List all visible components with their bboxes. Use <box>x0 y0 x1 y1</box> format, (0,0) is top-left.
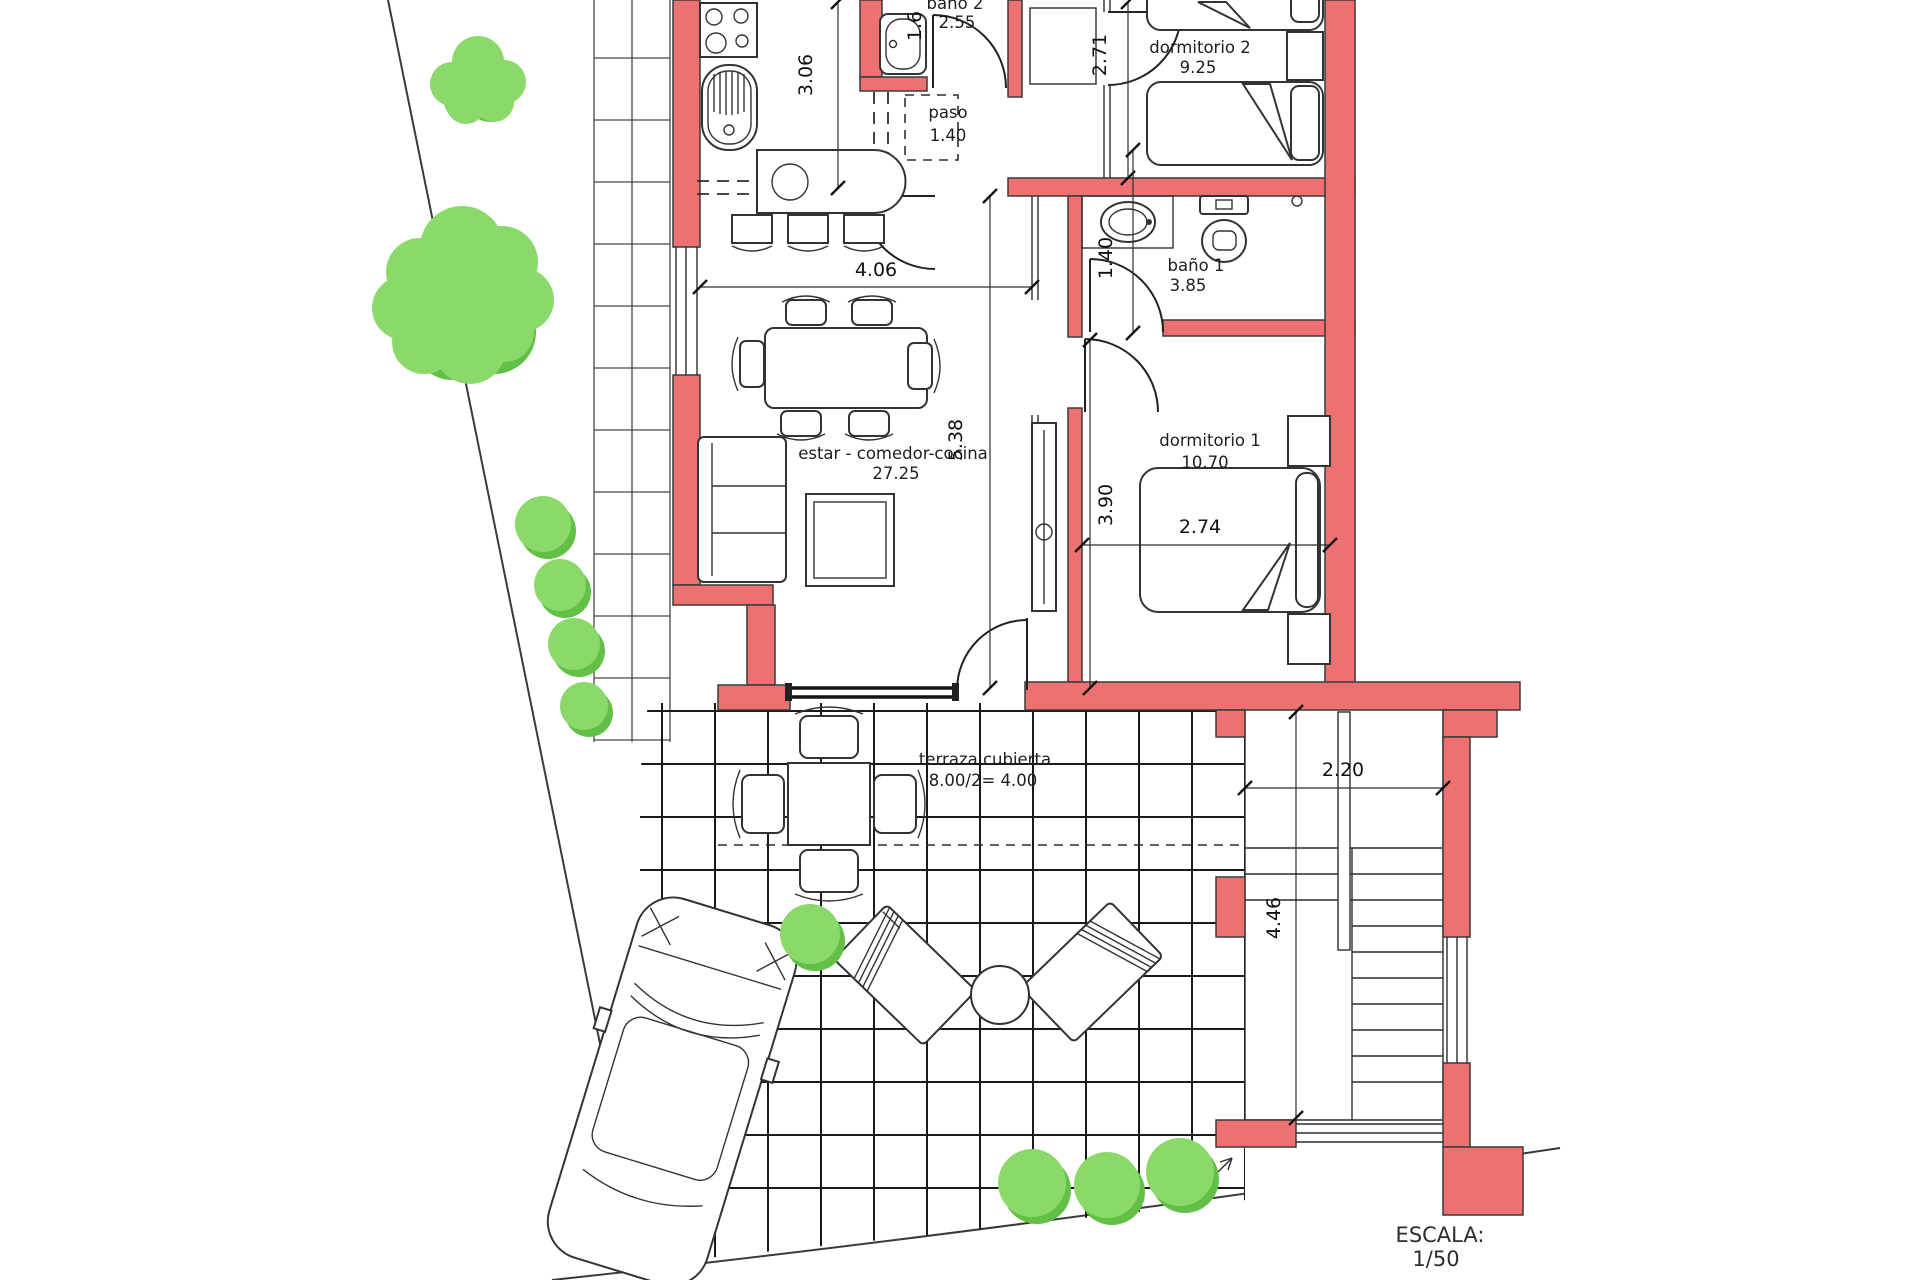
nightstand <box>1288 416 1330 466</box>
floor-plan-drawing: 3.06 1.6 2.71 4.06 1.40 5.38 3.90 2.74 2… <box>0 0 1920 1280</box>
stool <box>788 215 828 243</box>
nightstand <box>1288 614 1330 664</box>
dim-stairs-height: 4.46 <box>1263 897 1285 939</box>
room-label-estar-area: 27.25 <box>872 464 919 483</box>
dim-hall-width: 1.40 <box>1095 237 1117 279</box>
car <box>528 885 816 1280</box>
terrace-table <box>788 763 870 845</box>
room-label-dormitorio2-name: dormitorio 2 <box>1149 38 1251 57</box>
walkway-tiles <box>594 0 670 742</box>
room-label-terraza-area: 8.00/2= 4.00 <box>929 771 1038 790</box>
sun-lounger <box>834 905 976 1046</box>
floor-plan-page: 3.06 1.6 2.71 4.06 1.40 5.38 3.90 2.74 2… <box>0 0 1920 1280</box>
double-bed <box>1140 468 1320 612</box>
sofa <box>698 437 786 582</box>
room-label-bano2-name: baño 2 <box>927 0 984 13</box>
nightstand <box>1287 32 1323 80</box>
side-table <box>971 966 1029 1024</box>
bushes-bottom <box>998 1138 1219 1225</box>
dim-kitchen-height: 3.06 <box>795 54 817 96</box>
stool <box>844 215 884 243</box>
kitchen-sink <box>702 65 757 150</box>
room-label-bano1-area: 3.85 <box>1170 276 1207 295</box>
dim-dorm1-height: 3.90 <box>1095 484 1117 526</box>
pillow <box>1296 473 1318 607</box>
room-label-paso-name: paso <box>928 103 967 122</box>
floor-drain <box>1292 196 1302 206</box>
dim-stairs-width: 2.20 <box>1322 759 1364 781</box>
bedroom2-furniture <box>1147 0 1323 165</box>
sliding-door <box>785 683 959 701</box>
tree-large <box>372 206 554 384</box>
dim-dorm2-height: 2.71 <box>1089 34 1111 76</box>
kitchen-island <box>757 150 906 213</box>
room-label-bano1-name: baño 1 <box>1168 256 1225 275</box>
room-label-estar-name: estar - comedor-cocina <box>798 444 988 463</box>
bedroom1-furniture <box>1140 416 1330 664</box>
tree-small <box>430 36 526 124</box>
room-label-bano2-area: 2.55 <box>939 13 976 32</box>
room-label-dormitorio2-area: 9.25 <box>1180 58 1217 77</box>
dining-table <box>765 328 927 408</box>
room-label-dormitorio1-name: dormitorio 1 <box>1159 431 1261 450</box>
stool <box>732 215 772 243</box>
room-label-dormitorio1-area: 10.70 <box>1181 453 1228 472</box>
room-label-terraza-name: terraza cubierta <box>919 750 1051 769</box>
toilet-tank <box>1200 196 1248 214</box>
dim-dorm1-bed-width: 2.74 <box>1179 516 1221 538</box>
scale-value: 1/50 <box>1412 1247 1459 1271</box>
dim-living-width: 4.06 <box>855 259 897 281</box>
scale-note: ESCALA: 1/50 <box>1396 1223 1485 1271</box>
dining-set <box>732 296 940 440</box>
coffee-table <box>806 494 894 586</box>
dim-bath2-width: 1.6 <box>904 11 926 41</box>
room-label-paso-area: 1.40 <box>930 126 967 145</box>
scale-label: ESCALA: <box>1396 1223 1485 1247</box>
